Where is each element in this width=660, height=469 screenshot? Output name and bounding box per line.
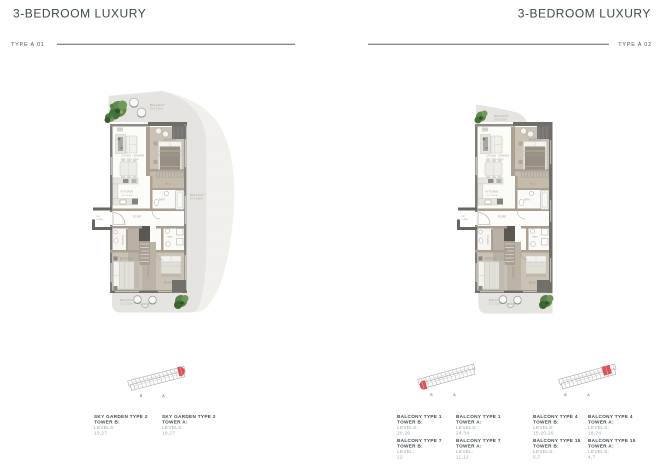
svg-text:BATH: BATH [159, 199, 165, 202]
svg-text:CORRIDOR: CORRIDOR [148, 266, 150, 278]
svg-text:12.1 SQ.M.: 12.1 SQ.M. [489, 304, 503, 306]
svg-text:BALCONY TYPE 7: BALCONY TYPE 7 [397, 438, 442, 443]
svg-text:LEVEL:: LEVEL: [456, 449, 474, 454]
svg-text:TYPE A 01: TYPE A 01 [11, 42, 45, 48]
svg-text:POWDER: POWDER [121, 235, 123, 245]
svg-text:TOWER B:: TOWER B: [397, 444, 423, 449]
svg-text:BALCONY TYPE 15: BALCONY TYPE 15 [588, 438, 636, 443]
svg-text:3-BEDROOM LUXURY: 3-BEDROOM LUXURY [518, 7, 651, 21]
svg-text:BALCONY TYPE 1: BALCONY TYPE 1 [456, 414, 501, 419]
svg-text:LIFT: LIFT [96, 216, 101, 218]
svg-text:TOWER A:: TOWER A: [588, 444, 614, 449]
svg-text:5,7: 5,7 [533, 455, 541, 460]
svg-text:LEVELS:: LEVELS: [588, 449, 609, 454]
svg-text:BATH: BATH [524, 199, 530, 202]
svg-text:BATH: BATH [532, 236, 538, 239]
svg-text:POWDER: POWDER [486, 235, 488, 245]
svg-text:LIVING / DINING: LIVING / DINING [122, 154, 145, 158]
svg-text:TOWER B:: TOWER B: [533, 444, 559, 449]
svg-text:LEVELS:: LEVELS: [397, 425, 418, 430]
svg-text:BEDROOM: BEDROOM [485, 258, 497, 261]
svg-text:15,20,26: 15,20,26 [533, 431, 554, 436]
svg-text:12: 12 [397, 455, 403, 460]
svg-text:11,12: 11,12 [456, 455, 469, 460]
svg-text:FOYER: FOYER [498, 216, 507, 219]
svg-text:LEVELS:: LEVELS: [533, 449, 554, 454]
svg-text:BATH: BATH [167, 236, 173, 239]
svg-text:LEVELS:: LEVELS: [533, 425, 554, 430]
svg-text:KITCHEN: KITCHEN [486, 190, 499, 194]
svg-text:BEDROOM: BEDROOM [529, 139, 541, 142]
svg-text:SKY GARDEN TYPE 2: SKY GARDEN TYPE 2 [162, 414, 216, 419]
svg-text:TOWER A:: TOWER A: [456, 420, 482, 425]
svg-text:LEVELS:: LEVELS: [94, 425, 115, 430]
svg-text:BALCONY: BALCONY [494, 114, 509, 118]
svg-text:SKY GARDEN TYPE 2: SKY GARDEN TYPE 2 [94, 414, 148, 419]
svg-text:TOWER B:: TOWER B: [94, 420, 120, 425]
svg-text:LEVEL:: LEVEL: [397, 449, 415, 454]
svg-text:LOBBY: LOBBY [461, 219, 469, 221]
svg-text:3.2 x 3.9 M: 3.2 x 3.9 M [122, 195, 133, 197]
svg-text:BALCONY: BALCONY [120, 298, 135, 302]
svg-text:LEVELS:: LEVELS: [162, 425, 183, 430]
svg-text:54.4 SQ.M.: 54.4 SQ.M. [190, 199, 204, 201]
svg-text:LOBBY: LOBBY [96, 219, 104, 221]
svg-text:BEDROOM: BEDROOM [164, 139, 176, 142]
svg-text:KITCHEN: KITCHEN [121, 190, 134, 194]
svg-text:LIFT: LIFT [461, 216, 466, 218]
svg-text:TOWER A:: TOWER A: [588, 420, 614, 425]
svg-text:CORRIDOR: CORRIDOR [513, 266, 515, 278]
svg-text:BALCONY TYPE 15: BALCONY TYPE 15 [533, 438, 581, 443]
svg-text:FOYER: FOYER [133, 216, 142, 219]
svg-text:BALCONY TYPE 4: BALCONY TYPE 4 [533, 414, 578, 419]
svg-text:TOWER B:: TOWER B: [397, 420, 423, 425]
svg-text:4,7: 4,7 [588, 455, 596, 460]
svg-text:TOWER A:: TOWER A: [456, 444, 482, 449]
svg-text:BALCONY: BALCONY [190, 193, 205, 197]
svg-text:10,27: 10,27 [162, 431, 175, 436]
svg-text:LEVELS:: LEVELS: [456, 425, 477, 430]
svg-text:3-BEDROOM LUXURY: 3-BEDROOM LUXURY [13, 7, 146, 21]
svg-text:28.6 SQ.M.: 28.6 SQ.M. [150, 109, 164, 111]
svg-text:W.I.C.: W.I.C. [530, 183, 537, 186]
svg-text:W.I.C.: W.I.C. [165, 183, 172, 186]
svg-text:BALCONY TYPE 4: BALCONY TYPE 4 [588, 414, 633, 419]
svg-text:12.1 SQ.M.: 12.1 SQ.M. [120, 304, 134, 306]
svg-text:TYPE A 02: TYPE A 02 [618, 42, 652, 48]
svg-text:BALCONY: BALCONY [150, 103, 165, 107]
svg-text:BEDROOM: BEDROOM [120, 258, 132, 261]
svg-text:3.2 x 3.9 M: 3.2 x 3.9 M [487, 195, 498, 197]
svg-text:20,26: 20,26 [397, 431, 410, 436]
svg-text:TOWER B:: TOWER B: [533, 420, 559, 425]
svg-text:BALCONY TYPE 7: BALCONY TYPE 7 [456, 438, 501, 443]
svg-text:LEVELS:: LEVELS: [588, 425, 609, 430]
svg-text:24,34: 24,34 [456, 431, 469, 436]
svg-text:BALCONY TYPE 1: BALCONY TYPE 1 [397, 414, 442, 419]
svg-text:LIVING / DINING: LIVING / DINING [487, 154, 510, 158]
svg-text:TOWER A:: TOWER A: [162, 420, 188, 425]
svg-text:18,24: 18,24 [588, 431, 601, 436]
svg-text:24.2 SQ.M.: 24.2 SQ.M. [494, 120, 508, 122]
svg-text:10,27: 10,27 [94, 431, 107, 436]
